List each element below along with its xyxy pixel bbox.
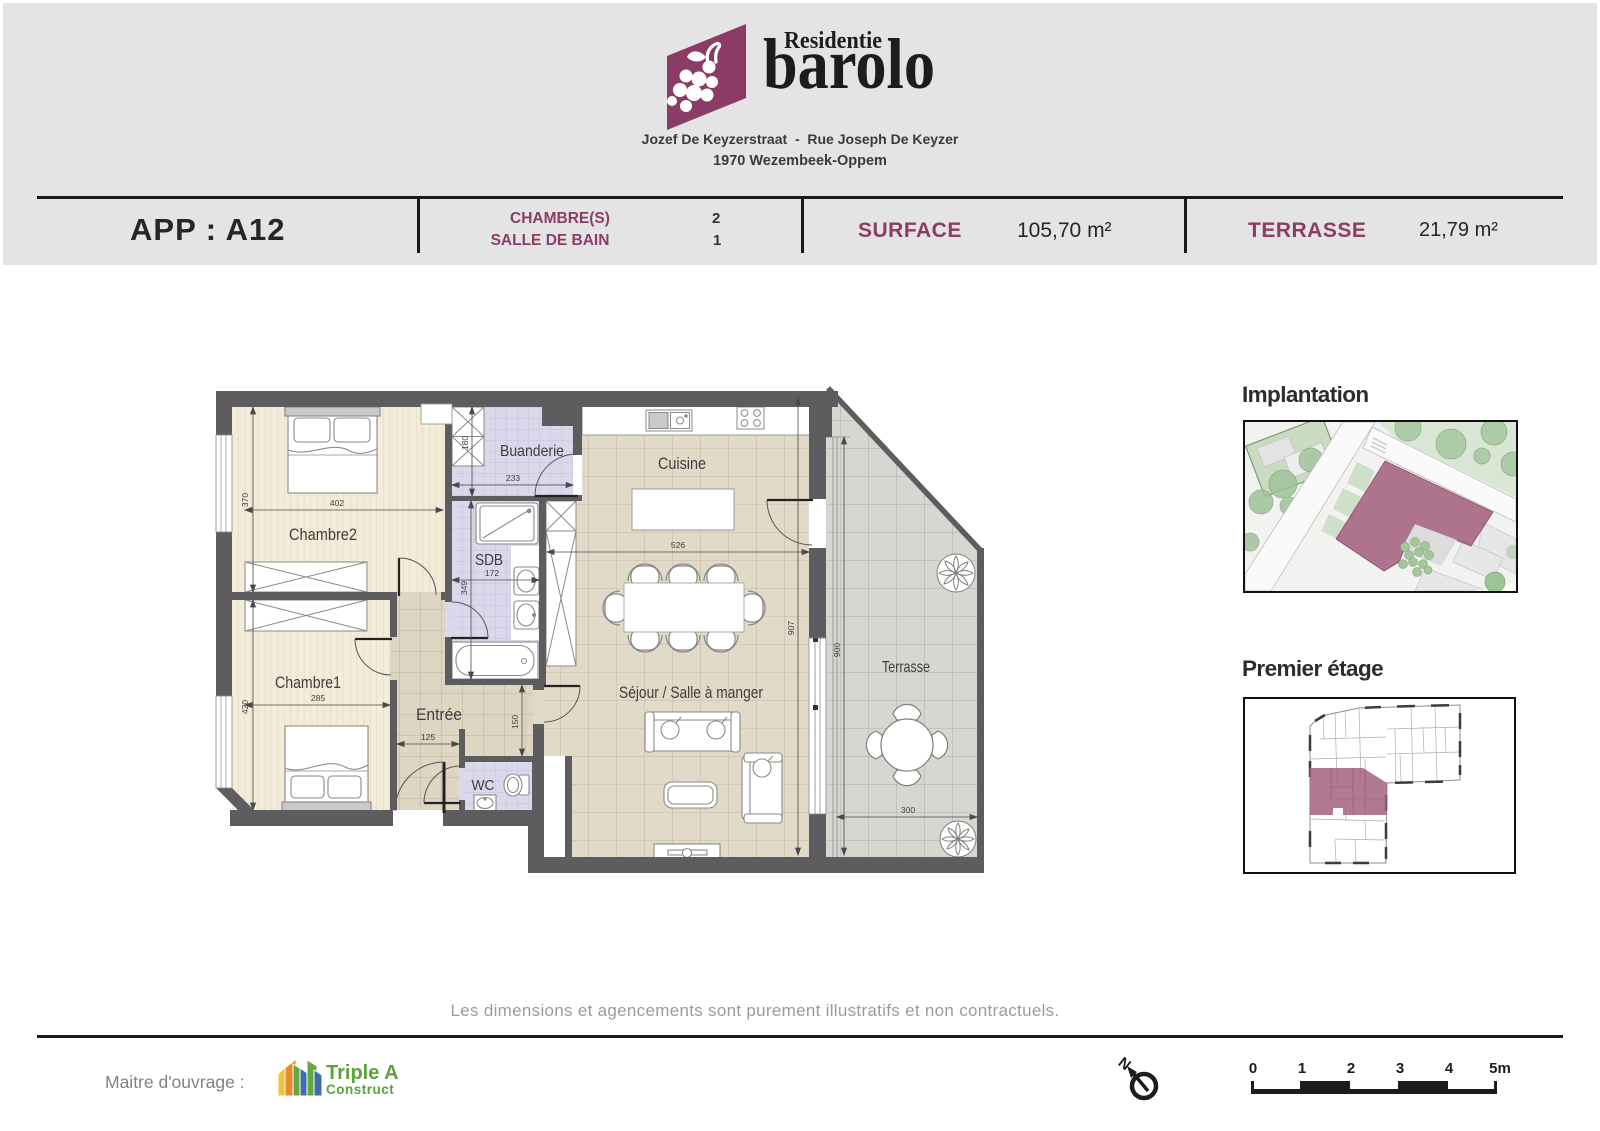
svg-text:4: 4 xyxy=(1445,1060,1454,1077)
svg-text:Chambre2: Chambre2 xyxy=(289,525,357,544)
svg-text:0: 0 xyxy=(1249,1060,1257,1077)
svg-text:420: 420 xyxy=(240,700,250,714)
svg-text:180: 180 xyxy=(460,436,470,450)
svg-text:5m: 5m xyxy=(1489,1060,1510,1077)
svg-text:125: 125 xyxy=(421,732,435,742)
svg-text:3: 3 xyxy=(1396,1060,1404,1077)
svg-text:SDB: SDB xyxy=(475,552,503,569)
svg-text:Chambre1: Chambre1 xyxy=(275,673,341,692)
svg-text:907: 907 xyxy=(786,621,796,635)
svg-text:300: 300 xyxy=(901,805,915,815)
svg-text:150: 150 xyxy=(510,715,520,729)
svg-text:370: 370 xyxy=(240,493,250,507)
svg-text:2: 2 xyxy=(1347,1060,1355,1077)
svg-text:Triple A: Triple A xyxy=(326,1062,399,1084)
svg-text:526: 526 xyxy=(671,540,685,550)
svg-text:402: 402 xyxy=(330,498,344,508)
svg-text:WC: WC xyxy=(472,777,495,794)
svg-text:1: 1 xyxy=(1298,1060,1306,1077)
svg-text:349: 349 xyxy=(459,581,469,595)
svg-text:barolo: barolo xyxy=(763,24,935,104)
svg-text:Buanderie: Buanderie xyxy=(500,443,564,460)
svg-text:Construct: Construct xyxy=(326,1082,394,1097)
svg-text:900: 900 xyxy=(832,643,842,657)
svg-text:Entrée: Entrée xyxy=(416,705,462,724)
svg-text:172: 172 xyxy=(485,568,499,578)
svg-text:285: 285 xyxy=(311,693,325,703)
svg-text:Cuisine: Cuisine xyxy=(658,454,706,473)
svg-text:233: 233 xyxy=(506,473,520,483)
svg-text:Séjour / Salle à manger: Séjour / Salle à manger xyxy=(619,683,763,702)
svg-text:Terrasse: Terrasse xyxy=(882,659,930,676)
